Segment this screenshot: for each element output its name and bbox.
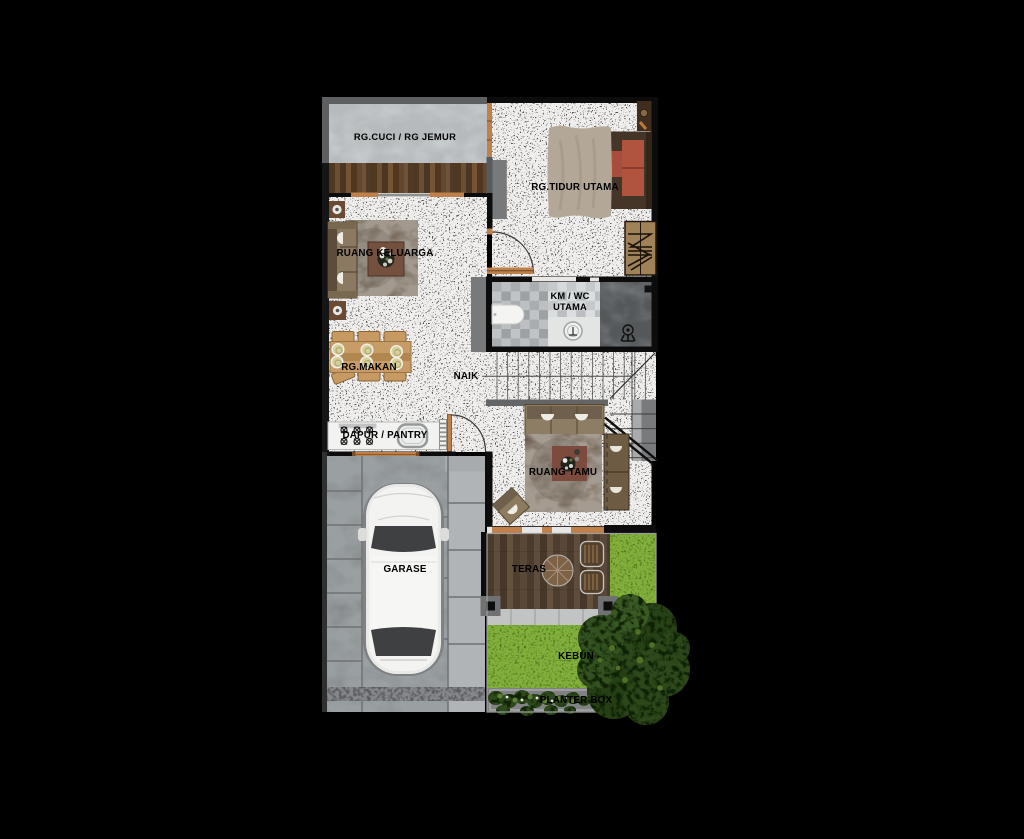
svg-text:RG.MAKAN: RG.MAKAN — [341, 362, 396, 373]
svg-text:RG.TIDUR UTAMA: RG.TIDUR UTAMA — [531, 182, 619, 193]
svg-text:TERAS: TERAS — [512, 564, 546, 575]
svg-text:KM / WC: KM / WC — [550, 291, 589, 301]
svg-text:KEBUN: KEBUN — [558, 651, 594, 662]
svg-text:RUANG TAMU: RUANG TAMU — [529, 467, 597, 478]
svg-text:DAPUR / PANTRY: DAPUR / PANTRY — [343, 430, 428, 441]
svg-text:UTAMA: UTAMA — [553, 302, 587, 312]
svg-text:PLANTER BOX: PLANTER BOX — [540, 695, 613, 706]
svg-text:GARASE: GARASE — [383, 564, 426, 575]
svg-text:RUANG KELUARGA: RUANG KELUARGA — [337, 248, 434, 259]
svg-text:RG.CUCI / RG JEMUR: RG.CUCI / RG JEMUR — [354, 131, 456, 142]
svg-text:NAIK: NAIK — [454, 371, 479, 382]
